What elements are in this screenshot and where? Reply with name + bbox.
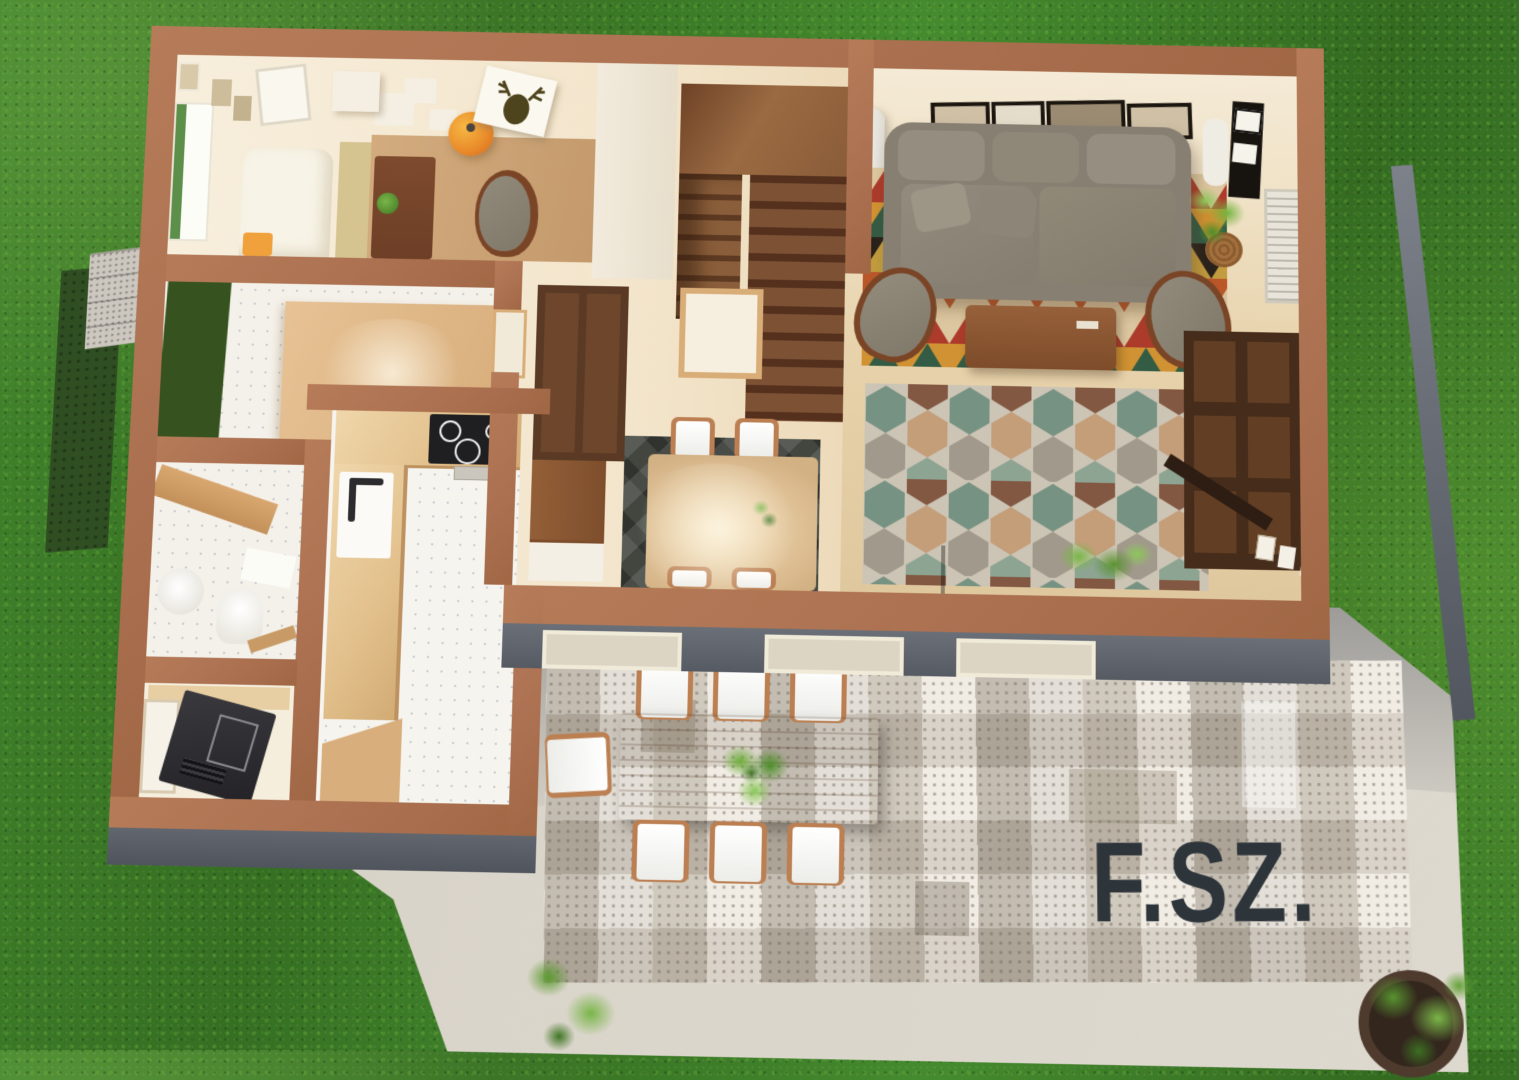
desk-chair-cushion [478, 175, 532, 251]
burner [439, 420, 462, 442]
mini-wall-frames [1255, 535, 1276, 562]
poster-frame [255, 64, 311, 127]
wall-stair-east [845, 39, 874, 274]
coffee-table [965, 305, 1116, 371]
dining-chair [731, 567, 776, 590]
patio-door-opening [542, 630, 682, 671]
tv-panel-frame [1233, 108, 1263, 134]
sofa-seat-cushion [1039, 186, 1176, 287]
stair-landing [679, 84, 848, 177]
coffee-table-tray [1077, 321, 1099, 329]
low-cabinet-shelf [528, 539, 604, 582]
yellow-cushion [242, 232, 273, 256]
hall-door-frame [491, 309, 527, 378]
house [107, 26, 1333, 892]
corridor-wall-block [592, 61, 679, 280]
wall-kitchen-north [307, 384, 551, 414]
dining-chair [667, 566, 712, 589]
fridge-panel [206, 714, 259, 772]
sofa-pillow [976, 188, 1038, 239]
patio-window-opening [956, 638, 1096, 679]
tall-cabinet [532, 285, 629, 462]
wall-box-shelves [332, 71, 381, 112]
rug-accent-tile [915, 881, 970, 936]
stair-door-frame [678, 288, 763, 380]
dining-chair [670, 417, 715, 459]
wall-hall-east-upper [493, 261, 522, 310]
corner-plant [1335, 944, 1502, 1080]
living-plant-bottom [1043, 524, 1160, 598]
study-floor-strip [335, 142, 371, 258]
sideboard [832, 543, 1066, 596]
cabinet-door [541, 293, 580, 453]
cabinet-door [582, 294, 620, 454]
sofa [882, 122, 1191, 304]
wall-pictures-study [178, 62, 201, 91]
sofa-back-cushion [898, 130, 985, 182]
wall-right [1296, 48, 1330, 640]
sofa-back-cushion [1087, 133, 1176, 185]
bookcase-shelf [1194, 341, 1236, 403]
terrace-plant-left [509, 941, 636, 1061]
wall-bath-south [145, 656, 298, 685]
burner [454, 438, 481, 464]
study-window [168, 102, 214, 241]
bookcase [1184, 331, 1301, 571]
sofa-back-cushion [992, 132, 1079, 184]
wall-bath-north [156, 436, 309, 465]
wall-face-wing [107, 827, 537, 873]
dining-table-plant [747, 494, 782, 535]
grass-lawn: { "scene": { "title": "3D ground-floor p… [0, 0, 1519, 1050]
right-wall-face [1391, 165, 1475, 721]
patio-door-opening [764, 634, 904, 675]
toilet [215, 587, 264, 644]
radiator-column [1203, 118, 1229, 186]
dining-chair [734, 418, 779, 460]
scene-3d: F.SZ. [0, 1, 1519, 1080]
